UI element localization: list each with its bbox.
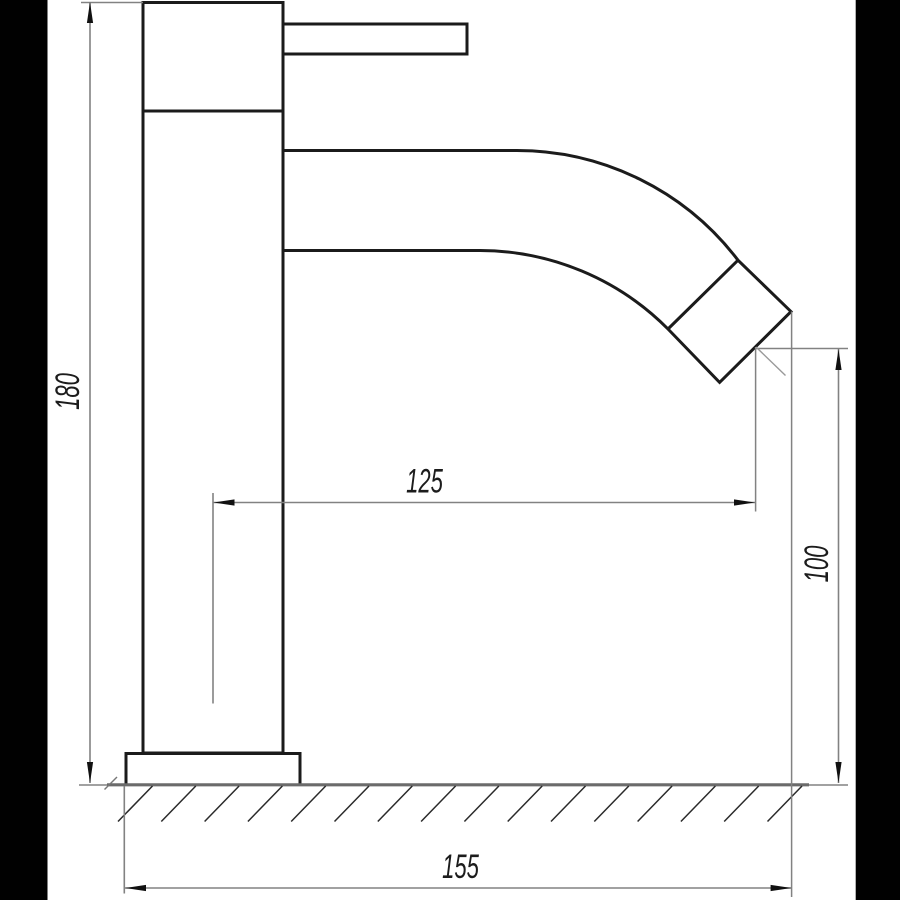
svg-text:125: 125 — [406, 463, 443, 501]
svg-text:155: 155 — [442, 848, 479, 886]
svg-text:100: 100 — [798, 546, 836, 583]
svg-text:180: 180 — [49, 373, 87, 410]
